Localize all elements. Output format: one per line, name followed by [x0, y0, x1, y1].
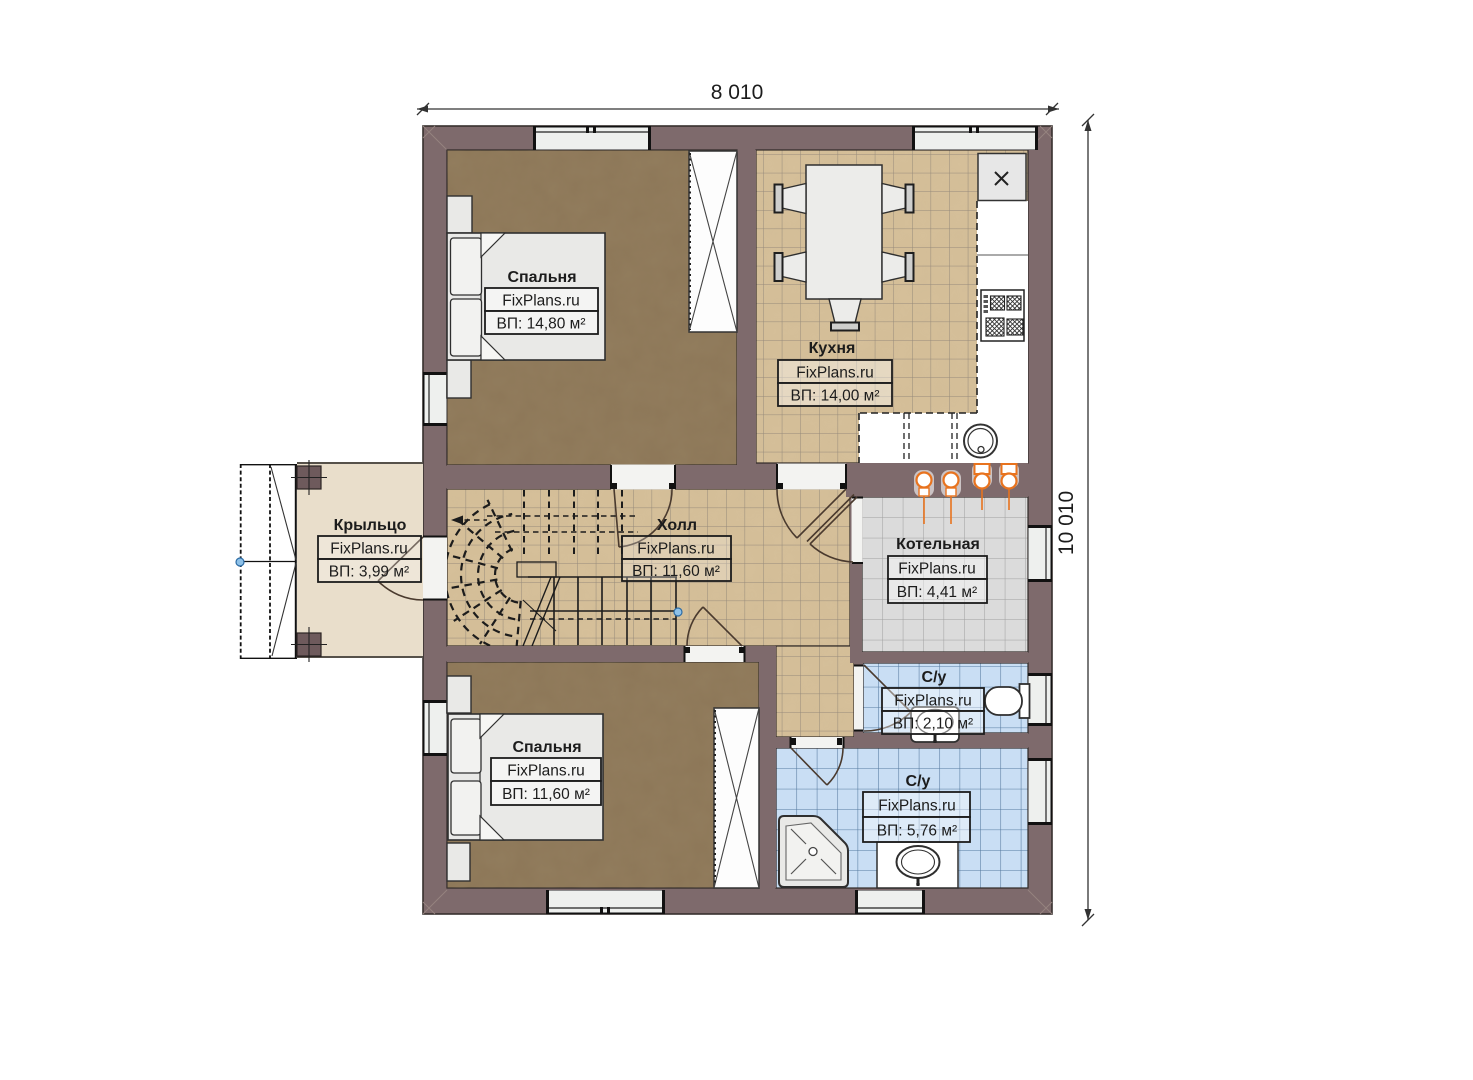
svg-text:Спальня: Спальня: [512, 739, 581, 756]
svg-text:ВП: 14,00 м²: ВП: 14,00 м²: [790, 388, 879, 405]
svg-text:FixPlans.ru: FixPlans.ru: [637, 541, 715, 558]
svg-text:ВП: 4,41 м²: ВП: 4,41 м²: [897, 584, 977, 601]
svg-text:ВП: 5,76 м²: ВП: 5,76 м²: [877, 823, 957, 840]
svg-text:С/у: С/у: [906, 773, 931, 790]
svg-text:8 010: 8 010: [711, 81, 764, 104]
svg-text:FixPlans.ru: FixPlans.ru: [878, 798, 956, 815]
svg-text:ВП: 11,60 м²: ВП: 11,60 м²: [502, 786, 590, 803]
svg-text:FixPlans.ru: FixPlans.ru: [894, 693, 972, 710]
svg-text:Холл: Холл: [657, 517, 697, 534]
svg-text:Котельная: Котельная: [896, 536, 980, 553]
svg-text:ВП: 3,99 м²: ВП: 3,99 м²: [329, 564, 409, 581]
svg-text:ВП: 11,60 м²: ВП: 11,60 м²: [632, 563, 720, 580]
svg-text:Спальня: Спальня: [507, 269, 576, 286]
svg-text:FixPlans.ru: FixPlans.ru: [796, 365, 874, 382]
svg-text:FixPlans.ru: FixPlans.ru: [330, 541, 408, 558]
svg-text:FixPlans.ru: FixPlans.ru: [898, 561, 976, 578]
svg-text:Крыльцо: Крыльцо: [334, 517, 407, 534]
svg-text:10 010: 10 010: [1055, 491, 1078, 555]
svg-text:FixPlans.ru: FixPlans.ru: [502, 293, 580, 310]
svg-text:Кухня: Кухня: [809, 340, 856, 357]
svg-text:FixPlans.ru: FixPlans.ru: [507, 763, 585, 780]
svg-text:ВП: 2,10 м²: ВП: 2,10 м²: [893, 716, 973, 733]
svg-text:С/у: С/у: [922, 669, 947, 686]
svg-text:ВП: 14,80 м²: ВП: 14,80 м²: [496, 316, 585, 333]
